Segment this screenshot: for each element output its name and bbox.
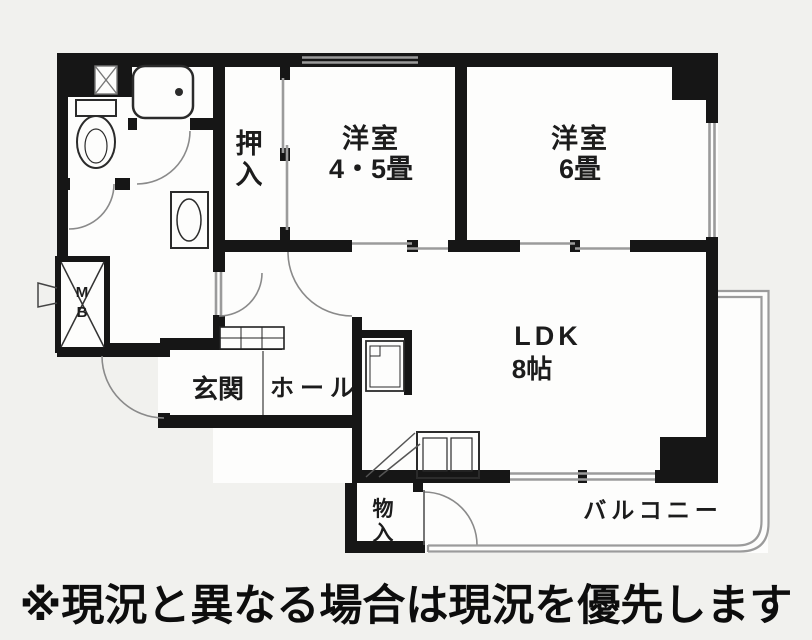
label-hall: ホール bbox=[270, 375, 360, 402]
meter-box bbox=[38, 259, 107, 350]
disclaimer-text: ※現況と異なる場合は現況を優先します bbox=[0, 572, 812, 632]
label-entrance: 玄関 bbox=[192, 374, 244, 404]
label-meter-box-char2: B bbox=[77, 304, 88, 321]
label-ldk-name: LDK bbox=[514, 321, 582, 351]
shoe-cabinet-icon bbox=[220, 327, 284, 349]
meter-box-flap bbox=[38, 283, 57, 307]
label-balcony: バルコニー bbox=[583, 497, 723, 523]
label-ldk-size: 8帖 bbox=[512, 354, 552, 384]
door-arc-entrance bbox=[102, 356, 164, 418]
label-western-room-6-size: 6畳 bbox=[559, 154, 601, 184]
bath-window-icon bbox=[95, 66, 117, 94]
label-closet-char2: 入 bbox=[236, 160, 263, 190]
label-western-room-45-name: 洋室 bbox=[342, 123, 400, 154]
label-western-room-45-size: 4・5畳 bbox=[329, 154, 413, 184]
floor-plan-page: 洋室 4・5畳 洋室 6畳 LDK 8帖 押 入 玄関 ホール 物 入 バルコニ… bbox=[0, 0, 812, 640]
label-meter-box-char1: M bbox=[76, 284, 89, 301]
label-western-room-6-name: 洋室 bbox=[551, 123, 609, 154]
label-storage-char1: 物 bbox=[373, 497, 394, 521]
floor-plan: 洋室 4・5畳 洋室 6畳 LDK 8帖 押 入 玄関 ホール 物 入 バルコニ… bbox=[0, 0, 812, 570]
label-storage-char2: 入 bbox=[373, 522, 394, 545]
label-closet-char1: 押 bbox=[236, 129, 263, 159]
